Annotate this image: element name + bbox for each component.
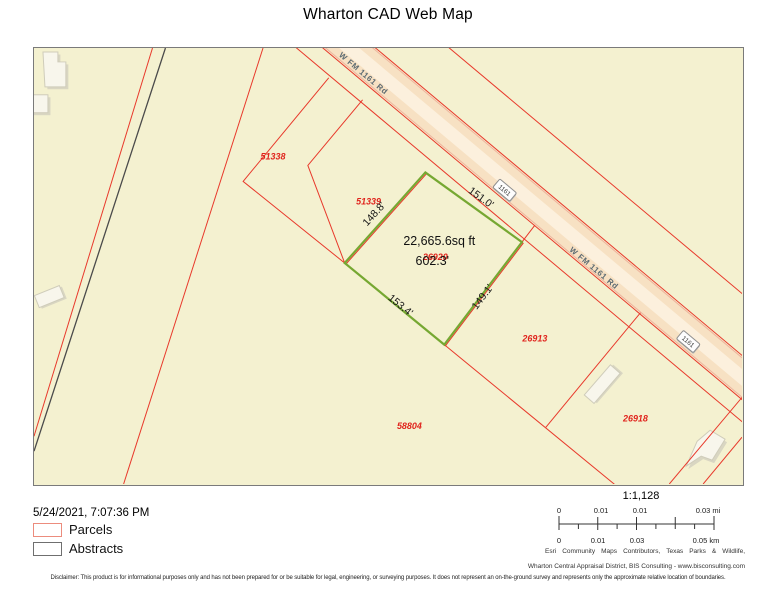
scale-mi-0: 0 xyxy=(557,506,561,515)
area-label: 22,665.6sq ft xyxy=(403,234,475,248)
legend-item-abstracts: Abstracts xyxy=(33,541,123,556)
disclaimer: Disclaimer: This product is for informat… xyxy=(0,575,776,581)
attribution-line-1: Esri Community Maps Contributors, Texas … xyxy=(545,548,745,556)
building-left-upper xyxy=(34,95,50,115)
page-title: Wharton CAD Web Map xyxy=(0,6,776,24)
parcel-label-58804: 58804 xyxy=(397,421,422,431)
scale-bar: 0 0.01 0.01 0.03 mi 0 0.01 0.03 0.05 km xyxy=(548,502,758,550)
perimeter-label: 602.3' xyxy=(416,254,450,268)
map-canvas: W FM 1161 Rd W FM 1161 Rd 1161 1161 xyxy=(34,48,742,484)
map-frame: W FM 1161 Rd W FM 1161 Rd 1161 1161 xyxy=(33,47,744,486)
legend-swatch-abstracts xyxy=(33,542,62,556)
legend-label-parcels: Parcels xyxy=(69,522,112,537)
parcel-label-26918: 26918 xyxy=(622,413,648,423)
parcel-label-26913: 26913 xyxy=(521,334,547,344)
scale-km-3: 0.05 km xyxy=(693,536,720,545)
scale-mi-1: 0.01 xyxy=(594,506,609,515)
parcel-label-51338: 51338 xyxy=(261,151,286,161)
scale-km-1: 0.01 xyxy=(591,536,606,545)
scale-mi-3: 0.03 mi xyxy=(696,506,721,515)
scale-km-0: 0 xyxy=(557,536,561,545)
scale-km-2: 0.03 xyxy=(630,536,645,545)
scale-mi-2: 0.01 xyxy=(633,506,648,515)
attribution-line-2: Wharton Central Appraisal District, BIS … xyxy=(505,563,745,571)
legend-label-abstracts: Abstracts xyxy=(69,541,123,556)
scale-ratio: 1:1,128 xyxy=(581,490,701,502)
timestamp: 5/24/2021, 7:07:36 PM xyxy=(33,507,149,519)
legend-swatch-parcels xyxy=(33,523,62,537)
print-page: Wharton CAD Web Map xyxy=(0,0,776,591)
legend-item-parcels: Parcels xyxy=(33,522,112,537)
